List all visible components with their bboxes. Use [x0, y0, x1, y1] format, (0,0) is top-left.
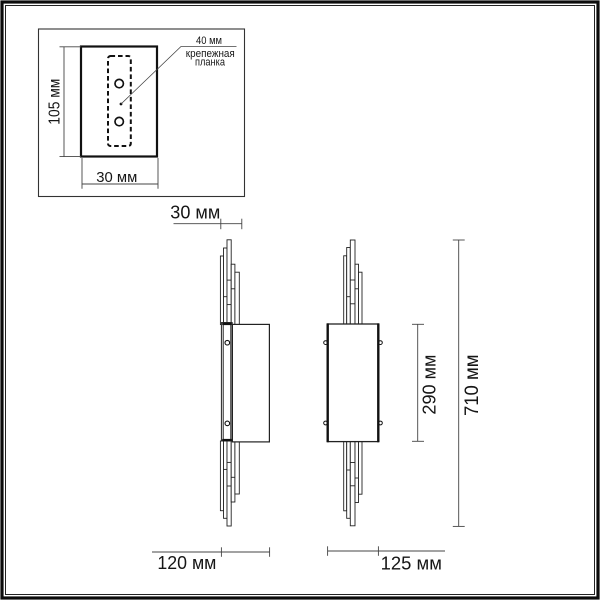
- svg-text:710 мм: 710 мм: [462, 355, 483, 417]
- svg-text:125 мм: 125 мм: [381, 553, 442, 573]
- svg-text:40 мм: 40 мм: [196, 35, 222, 47]
- svg-text:30 мм: 30 мм: [170, 203, 220, 223]
- svg-text:290 мм: 290 мм: [419, 355, 439, 415]
- svg-text:30 мм: 30 мм: [96, 169, 137, 186]
- svg-text:105 мм: 105 мм: [47, 79, 64, 125]
- svg-text:планка: планка: [195, 57, 226, 69]
- svg-text:120 мм: 120 мм: [157, 553, 216, 573]
